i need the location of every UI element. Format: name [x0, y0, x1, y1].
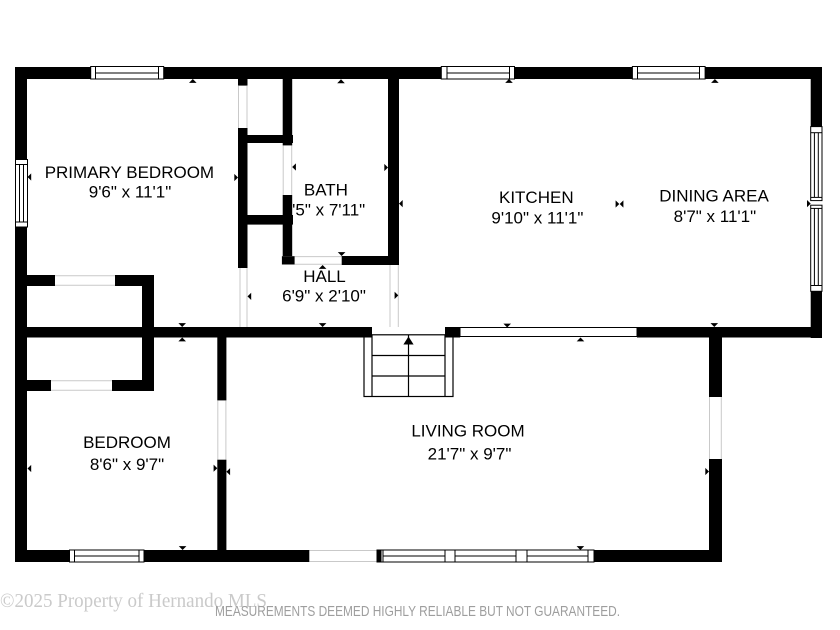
- svg-text:6'9" x 2'10": 6'9" x 2'10": [282, 286, 366, 305]
- svg-text:KITCHEN: KITCHEN: [499, 188, 574, 207]
- svg-text:9'10" x 11'1": 9'10" x 11'1": [491, 208, 583, 227]
- svg-text:DINING AREA: DINING AREA: [659, 187, 769, 206]
- svg-text:8'6" x 9'7": 8'6" x 9'7": [90, 455, 164, 474]
- svg-text:7'5" x 7'11": 7'5" x 7'11": [283, 201, 366, 220]
- svg-text:8'7" x 11'1": 8'7" x 11'1": [674, 207, 757, 226]
- svg-text:PRIMARY BEDROOM: PRIMARY BEDROOM: [45, 163, 214, 182]
- svg-text:LIVING ROOM: LIVING ROOM: [411, 422, 524, 441]
- svg-text:MEASUREMENTS DEEMED HIGHLY REL: MEASUREMENTS DEEMED HIGHLY RELIABLE BUT …: [215, 603, 620, 620]
- svg-text:BATH: BATH: [304, 181, 348, 200]
- svg-text:21'7" x 9'7": 21'7" x 9'7": [428, 444, 512, 463]
- svg-text:BEDROOM: BEDROOM: [83, 433, 171, 452]
- svg-text:HALL: HALL: [303, 267, 346, 286]
- svg-text:9'6" x 11'1": 9'6" x 11'1": [89, 183, 172, 202]
